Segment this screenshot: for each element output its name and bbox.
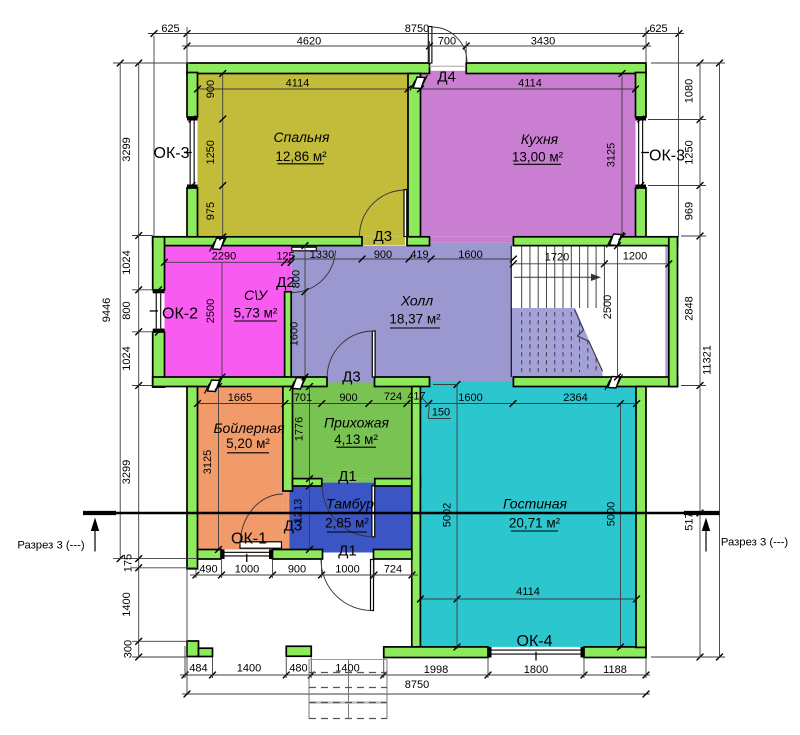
svg-text:150: 150 xyxy=(432,407,450,419)
svg-text:4,13 м²: 4,13 м² xyxy=(334,432,378,447)
svg-text:484: 484 xyxy=(189,663,207,675)
svg-text:1200: 1200 xyxy=(623,251,647,263)
svg-text:969: 969 xyxy=(684,202,696,220)
svg-text:1665: 1665 xyxy=(228,392,252,404)
svg-text:1024: 1024 xyxy=(121,346,133,370)
svg-text:11321: 11321 xyxy=(702,345,714,375)
svg-text:1600: 1600 xyxy=(458,249,482,261)
svg-text:Кухня: Кухня xyxy=(521,131,559,147)
svg-text:Прихожая: Прихожая xyxy=(324,415,389,431)
svg-text:2500: 2500 xyxy=(205,299,217,323)
svg-text:1400: 1400 xyxy=(121,592,133,616)
svg-text:3299: 3299 xyxy=(121,460,133,484)
svg-text:ОК-2: ОК-2 xyxy=(162,306,198,323)
svg-text:4114: 4114 xyxy=(286,78,310,90)
svg-text:ОК-3: ОК-3 xyxy=(154,145,190,162)
svg-text:5,20 м²: 5,20 м² xyxy=(226,436,270,451)
svg-text:3430: 3430 xyxy=(531,36,555,48)
svg-text:С\У: С\У xyxy=(244,287,269,303)
svg-text:Холл: Холл xyxy=(400,293,433,309)
svg-text:8750: 8750 xyxy=(405,679,429,691)
svg-text:2848: 2848 xyxy=(684,296,696,320)
svg-text:4620: 4620 xyxy=(297,36,321,48)
svg-text:4114: 4114 xyxy=(516,586,540,598)
svg-text:1213: 1213 xyxy=(293,499,305,523)
svg-text:800: 800 xyxy=(291,270,303,288)
svg-text:9446: 9446 xyxy=(101,298,113,322)
svg-text:12,86 м²: 12,86 м² xyxy=(275,149,327,164)
svg-text:ОК-4: ОК-4 xyxy=(517,633,553,650)
svg-text:1000: 1000 xyxy=(235,564,259,576)
svg-text:2290: 2290 xyxy=(212,251,236,263)
svg-text:Разрез 3 (---): Разрез 3 (---) xyxy=(17,540,85,552)
svg-text:724: 724 xyxy=(384,391,402,403)
svg-text:18,37 м²: 18,37 м² xyxy=(389,312,441,327)
svg-text:ОК-1: ОК-1 xyxy=(231,531,267,548)
svg-text:5000: 5000 xyxy=(606,502,618,526)
svg-text:1000: 1000 xyxy=(335,564,359,576)
svg-text:4114: 4114 xyxy=(518,78,542,90)
svg-text:1998: 1998 xyxy=(424,664,448,676)
svg-text:900: 900 xyxy=(288,564,306,576)
svg-text:1776: 1776 xyxy=(294,417,306,441)
svg-text:Гостиная: Гостиная xyxy=(503,496,568,512)
svg-text:419: 419 xyxy=(410,249,428,261)
svg-text:3125: 3125 xyxy=(202,450,214,474)
svg-text:Д1: Д1 xyxy=(338,543,357,560)
svg-text:Бойлерная: Бойлерная xyxy=(213,420,285,436)
svg-text:ОК-3: ОК-3 xyxy=(649,148,685,165)
svg-text:975: 975 xyxy=(205,202,217,220)
svg-text:Разрез 3 (---): Разрез 3 (---) xyxy=(721,537,789,549)
svg-text:175: 175 xyxy=(123,554,135,572)
svg-text:3299: 3299 xyxy=(121,137,133,161)
svg-text:Д1: Д1 xyxy=(338,468,357,485)
svg-text:490: 490 xyxy=(199,564,217,576)
svg-text:1080: 1080 xyxy=(684,79,696,103)
svg-text:Д3: Д3 xyxy=(374,228,393,245)
svg-text:1800: 1800 xyxy=(524,664,548,676)
svg-text:2,85 м²: 2,85 м² xyxy=(325,516,369,531)
svg-text:700: 700 xyxy=(438,36,456,48)
svg-text:417: 417 xyxy=(407,391,425,403)
svg-text:Спальня: Спальня xyxy=(274,129,330,145)
svg-text:1250: 1250 xyxy=(684,140,696,164)
svg-text:517: 517 xyxy=(684,512,696,530)
svg-text:1188: 1188 xyxy=(603,664,627,676)
svg-text:Д3: Д3 xyxy=(342,369,361,386)
svg-text:3125: 3125 xyxy=(606,143,618,167)
svg-text:900: 900 xyxy=(339,392,357,404)
svg-text:20,71 м²: 20,71 м² xyxy=(509,516,561,531)
svg-text:1600: 1600 xyxy=(458,392,482,404)
svg-text:1600: 1600 xyxy=(289,322,301,346)
svg-text:5,73 м²: 5,73 м² xyxy=(234,306,278,321)
svg-text:1250: 1250 xyxy=(205,140,217,164)
svg-text:13,00 м²: 13,00 м² xyxy=(512,150,564,165)
svg-text:5002: 5002 xyxy=(442,503,454,527)
svg-text:Д4: Д4 xyxy=(437,69,456,86)
svg-text:900: 900 xyxy=(374,249,392,261)
svg-text:Тамбур: Тамбур xyxy=(326,496,374,512)
svg-text:900: 900 xyxy=(205,80,217,98)
svg-text:1330: 1330 xyxy=(310,249,334,261)
svg-text:125: 125 xyxy=(276,251,294,263)
svg-text:625: 625 xyxy=(161,23,179,35)
svg-text:724: 724 xyxy=(384,564,402,576)
svg-text:1400: 1400 xyxy=(335,663,359,675)
svg-text:480: 480 xyxy=(289,663,307,675)
svg-text:1720: 1720 xyxy=(545,252,569,264)
svg-text:1400: 1400 xyxy=(237,663,261,675)
svg-text:2500: 2500 xyxy=(602,295,614,319)
svg-text:625: 625 xyxy=(649,23,667,35)
svg-text:701: 701 xyxy=(294,392,312,404)
svg-text:1024: 1024 xyxy=(121,250,133,274)
svg-text:8750: 8750 xyxy=(405,23,429,35)
svg-text:2364: 2364 xyxy=(563,392,587,404)
svg-text:300: 300 xyxy=(123,640,135,658)
svg-text:800: 800 xyxy=(121,301,133,319)
